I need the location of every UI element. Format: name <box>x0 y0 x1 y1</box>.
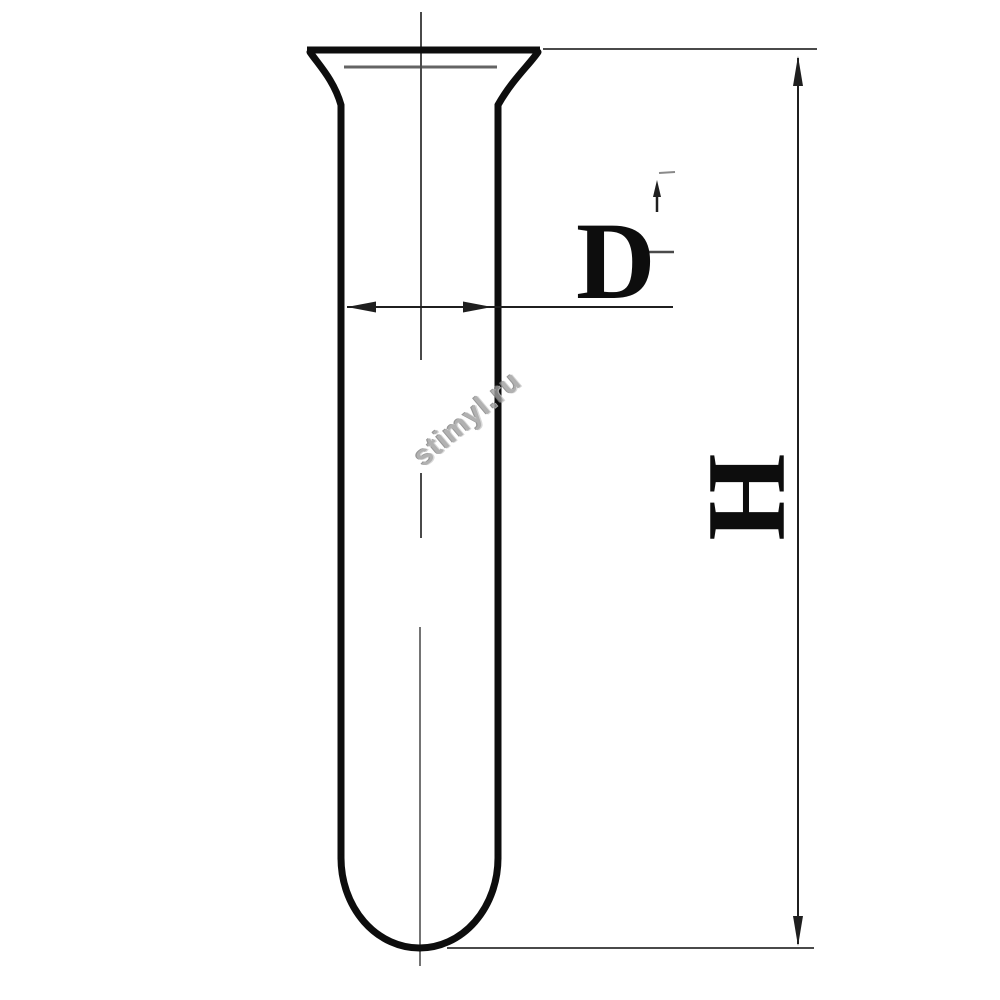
height-arrow-top <box>793 56 803 86</box>
height-label: H <box>685 453 809 540</box>
tick-mark-upper <box>659 172 675 173</box>
diameter-label: D <box>576 200 655 322</box>
leader-arrow-up-head <box>653 180 661 197</box>
tube-left-wall <box>310 52 341 858</box>
tube-right-wall <box>498 52 538 858</box>
drawing-svg: D H <box>0 0 1000 1000</box>
height-arrow-bottom <box>793 916 803 946</box>
diameter-arrow-right <box>463 302 492 313</box>
test-tube-drawing: D H stimyl.ru <box>0 0 1000 1000</box>
diameter-arrow-left <box>347 302 376 313</box>
